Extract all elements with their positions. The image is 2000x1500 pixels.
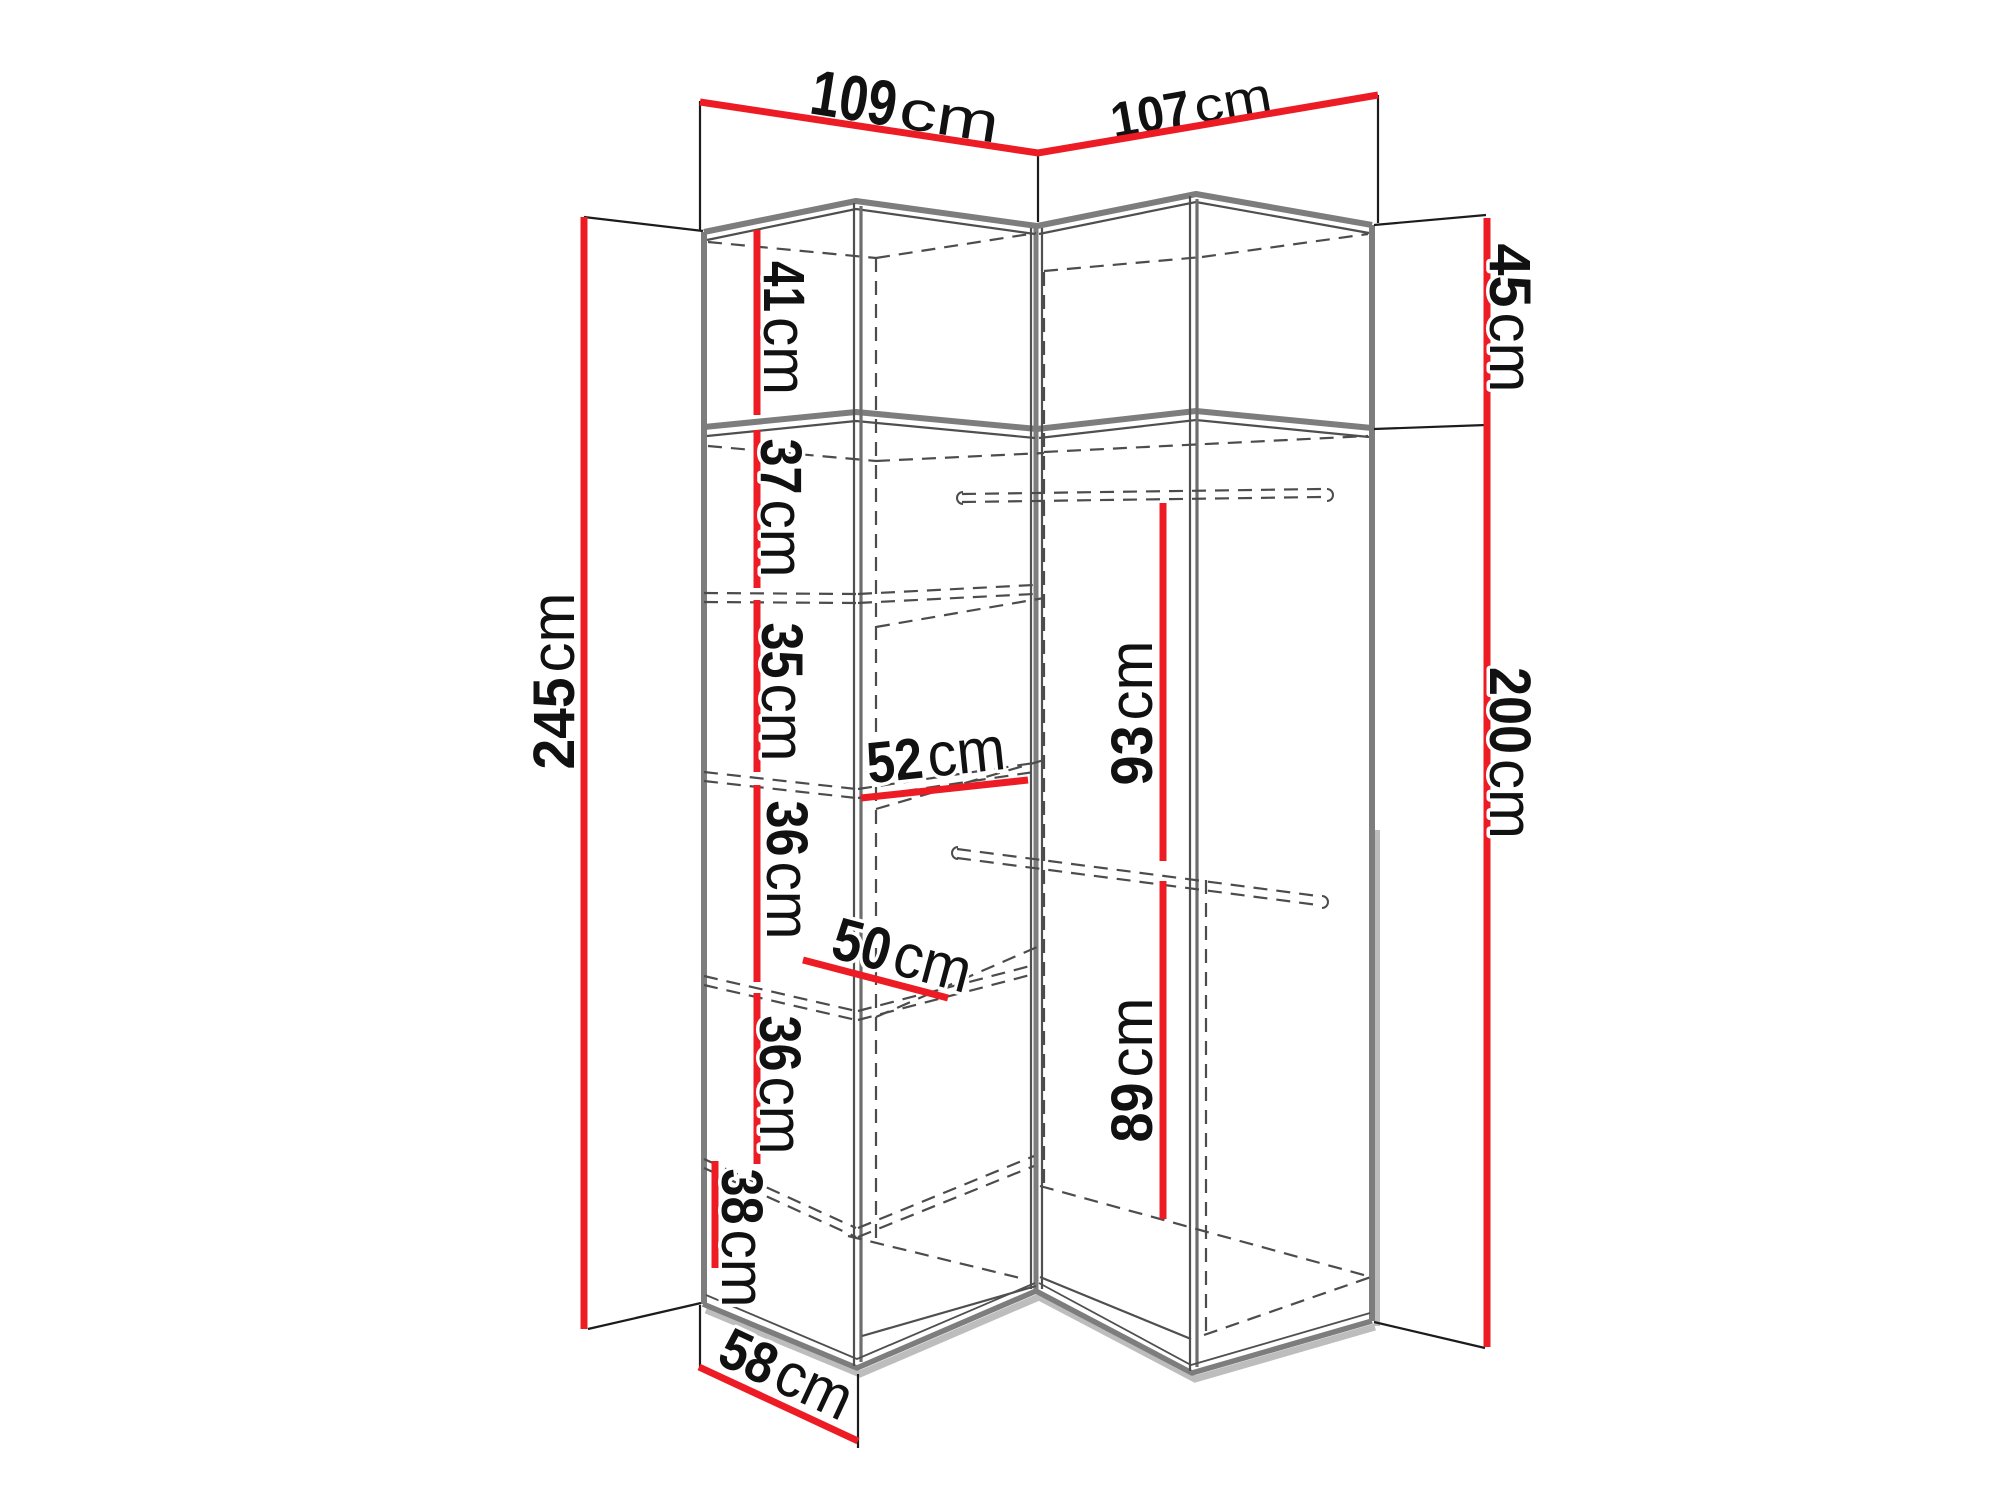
svg-text:45cm: 45cm [1476,244,1545,393]
svg-text:37cm: 37cm [747,439,816,578]
svg-text:36cm: 36cm [746,1016,815,1155]
svg-text:41cm: 41cm [750,261,819,395]
svg-text:36cm: 36cm [753,801,822,940]
svg-text:35cm: 35cm [748,623,817,762]
svg-text:93cm: 93cm [1097,641,1166,786]
svg-text:245cm: 245cm [519,593,588,770]
svg-text:200cm: 200cm [1476,667,1545,839]
svg-text:89cm: 89cm [1097,998,1166,1143]
svg-text:38cm: 38cm [708,1169,777,1308]
